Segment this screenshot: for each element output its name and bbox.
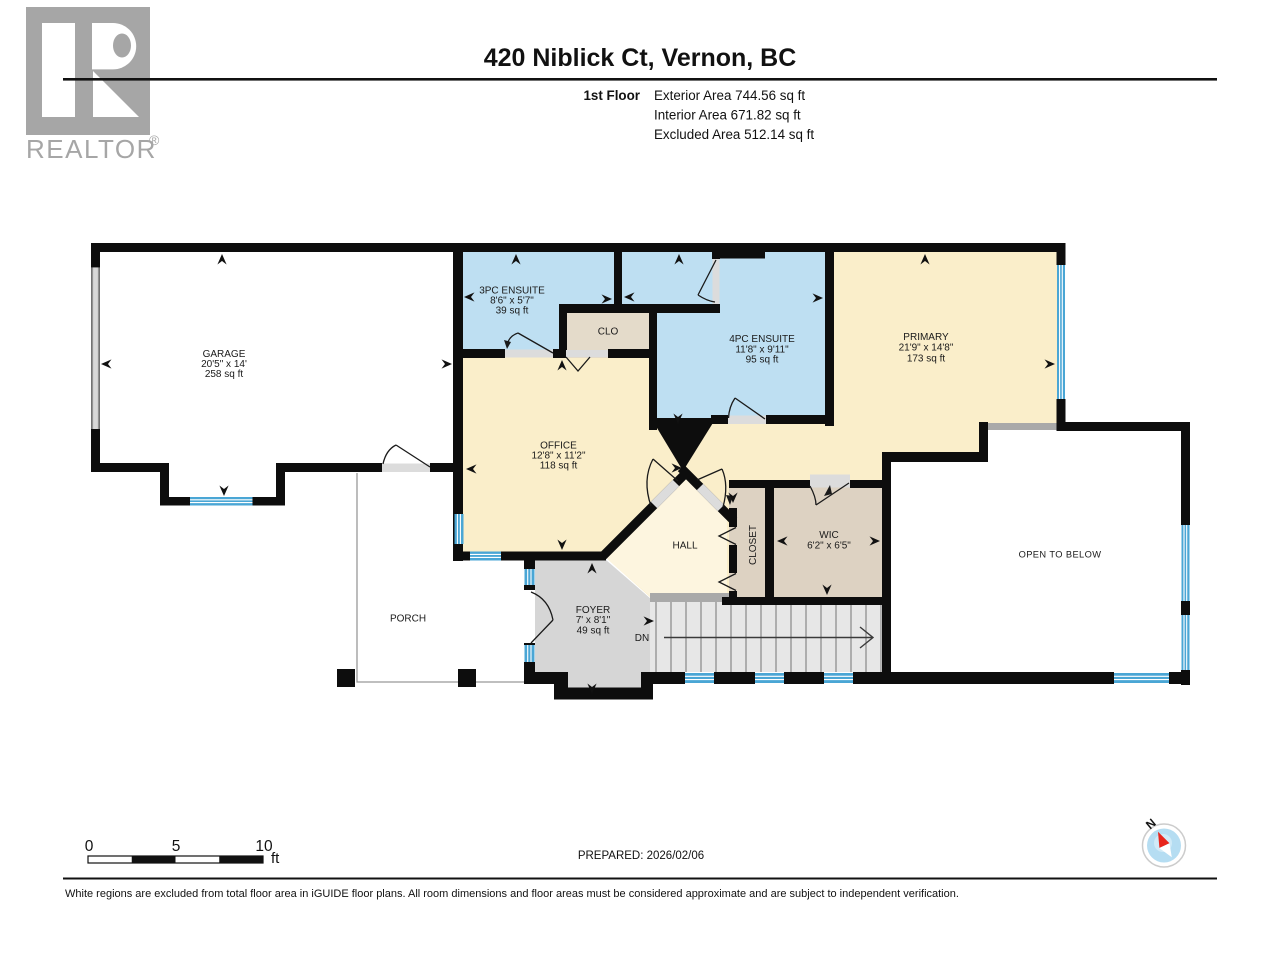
svg-text:ft: ft: [271, 850, 280, 867]
svg-text:Interior Area 671.82 sq ft: Interior Area 671.82 sq ft: [654, 108, 801, 123]
svg-text:95 sq ft: 95 sq ft: [746, 355, 779, 366]
svg-text:39 sq ft: 39 sq ft: [496, 306, 529, 317]
svg-text:PORCH: PORCH: [390, 614, 426, 625]
svg-text:PRIMARY: PRIMARY: [903, 332, 949, 343]
svg-text:DN: DN: [635, 633, 649, 644]
svg-text:21'9" x 14'8": 21'9" x 14'8": [899, 343, 954, 354]
svg-text:Excluded Area 512.14 sq ft: Excluded Area 512.14 sq ft: [654, 127, 814, 142]
svg-text:OPEN TO BELOW: OPEN TO BELOW: [1019, 550, 1102, 560]
svg-text:6'2" x 6'5": 6'2" x 6'5": [807, 541, 851, 552]
svg-text:HALL: HALL: [672, 541, 697, 552]
svg-text:PREPARED: 2026/02/06: PREPARED: 2026/02/06: [578, 850, 704, 862]
svg-text:1st Floor: 1st Floor: [583, 88, 640, 103]
svg-text:5: 5: [172, 838, 181, 855]
svg-text:173 sq ft: 173 sq ft: [907, 353, 946, 364]
svg-text:CLOSET: CLOSET: [748, 525, 759, 565]
svg-text:WIC: WIC: [819, 530, 838, 541]
svg-text:420 Niblick Ct, Vernon, BC: 420 Niblick Ct, Vernon, BC: [484, 44, 797, 72]
svg-text:258 sq ft: 258 sq ft: [205, 369, 244, 380]
svg-text:49 sq ft: 49 sq ft: [577, 625, 610, 636]
svg-text:REALTOR: REALTOR: [26, 134, 157, 164]
svg-text:®: ®: [149, 132, 160, 148]
svg-text:CLO: CLO: [598, 327, 619, 338]
svg-text:0: 0: [85, 838, 94, 855]
svg-text:118 sq ft: 118 sq ft: [540, 461, 578, 472]
svg-text:White regions are excluded fro: White regions are excluded from total fl…: [65, 888, 959, 900]
svg-text:Exterior Area 744.56 sq ft: Exterior Area 744.56 sq ft: [654, 88, 805, 103]
